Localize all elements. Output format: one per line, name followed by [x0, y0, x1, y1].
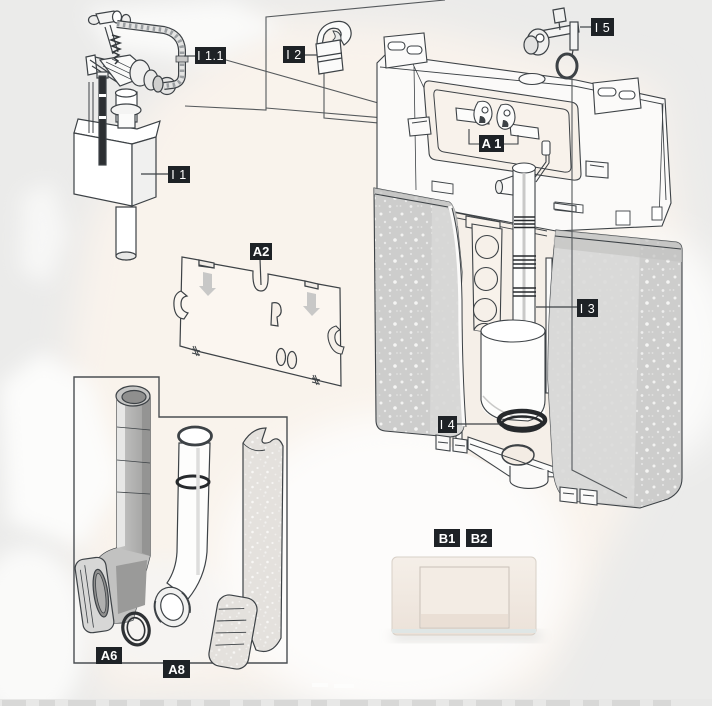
- svg-text:A2: A2: [253, 244, 270, 259]
- svg-text:I 1: I 1: [171, 168, 186, 182]
- svg-text:I 4: I 4: [440, 418, 455, 432]
- svg-text:A8: A8: [168, 662, 185, 677]
- svg-text:I 3: I 3: [580, 302, 595, 316]
- svg-text:I 5: I 5: [595, 21, 610, 35]
- svg-text:B2: B2: [471, 531, 488, 546]
- svg-text:A6: A6: [101, 648, 118, 663]
- svg-text:I 1.1: I 1.1: [197, 49, 224, 63]
- svg-text:I 2: I 2: [286, 48, 301, 62]
- svg-text:A 1: A 1: [482, 136, 502, 151]
- svg-text:B1: B1: [439, 531, 456, 546]
